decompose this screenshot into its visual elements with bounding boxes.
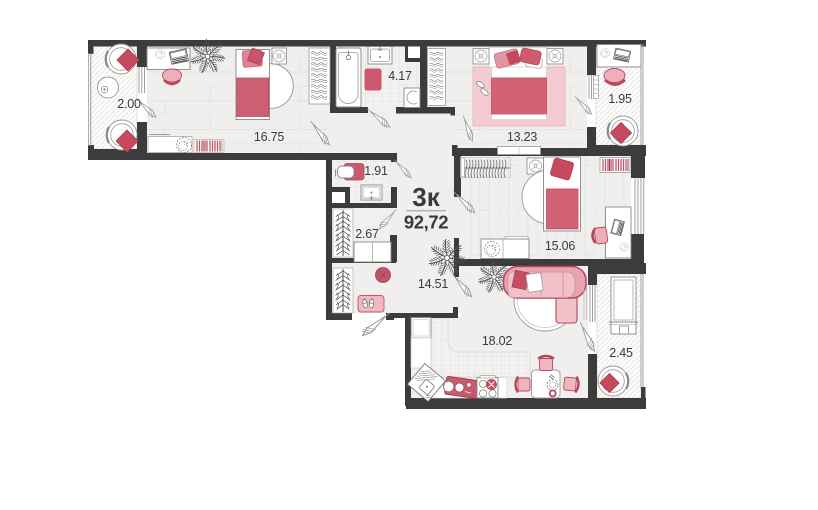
svg-text:1.91: 1.91 xyxy=(364,164,388,178)
svg-text:1.95: 1.95 xyxy=(608,92,632,106)
svg-text:15.06: 15.06 xyxy=(545,239,576,253)
svg-text:2.00: 2.00 xyxy=(117,97,141,111)
svg-text:2.67: 2.67 xyxy=(355,227,379,241)
svg-text:14.51: 14.51 xyxy=(418,277,449,291)
svg-text:16.75: 16.75 xyxy=(254,130,285,144)
svg-text:13.23: 13.23 xyxy=(507,130,538,144)
svg-text:3к: 3к xyxy=(412,182,440,212)
svg-text:18.02: 18.02 xyxy=(482,334,513,348)
svg-text:4.17: 4.17 xyxy=(388,69,412,83)
svg-text:92,72: 92,72 xyxy=(404,212,448,233)
svg-text:2.45: 2.45 xyxy=(609,346,633,360)
